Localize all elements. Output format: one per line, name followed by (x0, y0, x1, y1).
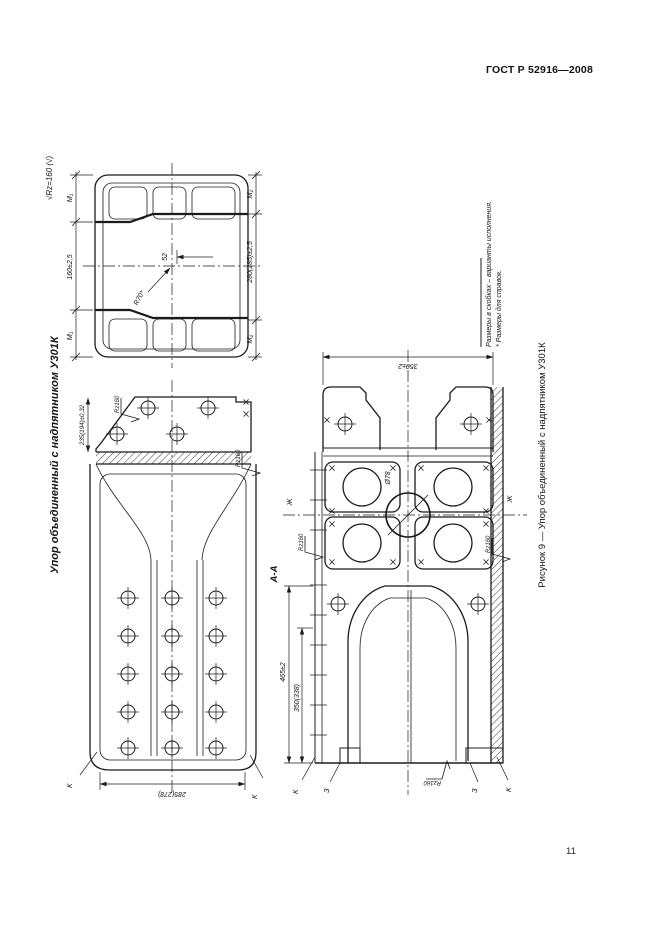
elevation-view: Rz160 Rz160 (65, 380, 263, 799)
datum-m2-bottom: М₂ (245, 334, 254, 343)
dim-height-overall: 465±2 (280, 662, 287, 682)
drawing-side-title: Упор объединенный с надпятником У301К (49, 335, 61, 573)
section-hatch-band (96, 452, 251, 464)
roughness-value: Rz160 (299, 533, 305, 551)
wall-hatch (491, 387, 503, 763)
dim-base: 285(278) (158, 790, 187, 797)
datum-k-bottom-left: К (291, 789, 300, 794)
bolt-hole (166, 423, 188, 445)
roughness-value: Rz160 (423, 779, 441, 785)
datum-m1-top: М₁ (65, 193, 74, 202)
dim-width: 160±2,5 (67, 254, 74, 279)
datum-m1-bottom: М₁ (65, 331, 74, 340)
datum-k-bottom-right: К (504, 787, 513, 792)
datum-zh-left: Ж (285, 497, 294, 506)
datum-k-right: К (250, 794, 259, 799)
roughness-text: √Rz=160 (√) (45, 156, 54, 200)
plan-view: 52 R70* М₁ 160±2,5 М₁ (65, 163, 262, 368)
datum-z-right: З (470, 788, 479, 793)
bolt-hole (106, 423, 128, 445)
datum-m2-top: М₂ (245, 189, 254, 198)
footnote-line-2: Размеры в скобках – варианты исполнения. (485, 201, 493, 347)
section-label: А-А (269, 565, 280, 583)
datum-z-left: З (322, 788, 331, 793)
radius-label: R70* (133, 290, 147, 307)
machining-mark (243, 411, 248, 416)
technical-drawing: √Rz=160 (√) Упор объединенный с надпятни… (0, 0, 661, 936)
roughness-flag: Rz160 (299, 533, 323, 560)
bolt-hole (197, 397, 219, 419)
document-page: ГОСТ Р 52916—2008 11 √Rz=160 (√) (0, 0, 661, 936)
bolt-hole (137, 397, 159, 419)
figure-caption: Рисунок 9 — Упор объединенный с надпятни… (537, 342, 548, 588)
dia-center-hole: Ø78 (385, 471, 392, 485)
roughness-value: Rz160 (486, 535, 492, 553)
roughness-value: Rz160 (115, 395, 121, 413)
roughness-flag-bottom: Rz160 (423, 761, 450, 785)
dim-slot-52: 52 (162, 253, 169, 261)
dim-length: 280(285)±2,5 (247, 241, 254, 284)
general-roughness-mark: √Rz=160 (√) (45, 156, 54, 200)
dim-elevation-top: 235(194)±0,32 (79, 404, 86, 446)
footnote-line-1: * Размеры для справок. (495, 270, 503, 347)
section-view: А-А 350±2 Ø78 (269, 350, 527, 795)
datum-k-left: К (65, 783, 74, 788)
datum-zh-right: Ж (505, 494, 514, 503)
footnote-block: * Размеры для справок. Размеры в скобках… (481, 201, 503, 347)
dim-height-inner: 350(338) (294, 684, 301, 712)
